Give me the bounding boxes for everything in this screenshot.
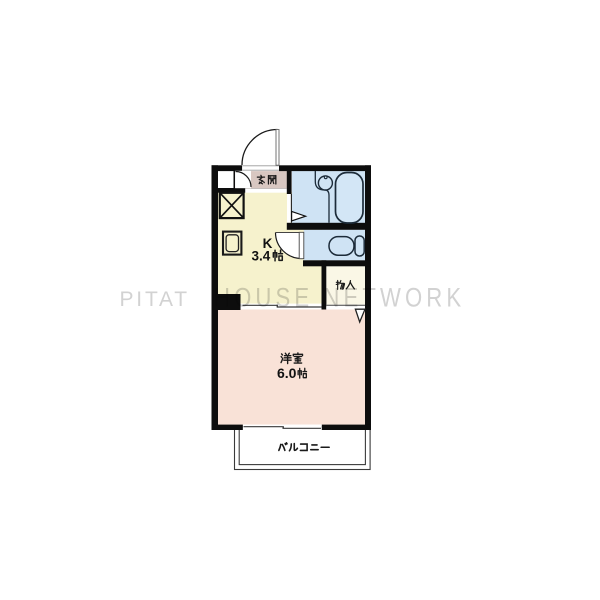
svg-text:HOUSE NETWORK: HOUSE NETWORK	[214, 284, 465, 314]
svg-text:6.0: 6.0	[277, 365, 297, 381]
svg-text:PITAT: PITAT	[120, 288, 190, 311]
svg-text:3.4: 3.4	[252, 248, 271, 263]
